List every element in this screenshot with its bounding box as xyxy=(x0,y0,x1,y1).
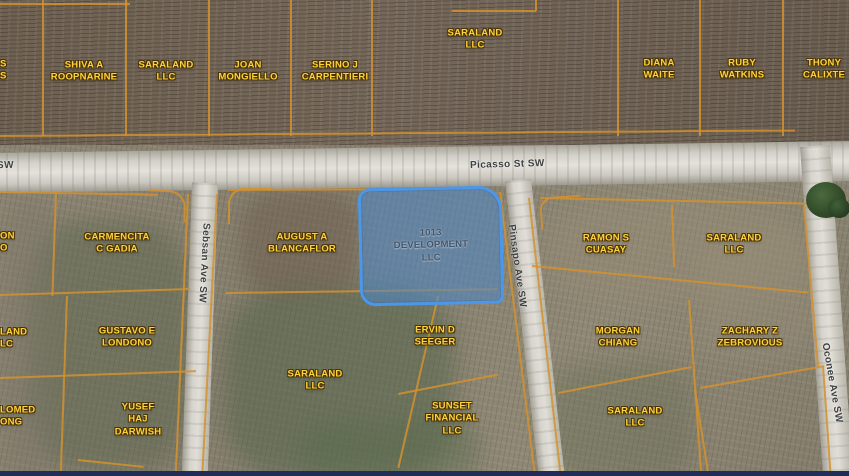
parcel-boundary-line xyxy=(532,265,809,294)
parcel-label-partial-left-1[interactable]: ON O xyxy=(0,231,15,256)
parcel-boundary-line xyxy=(208,0,210,136)
parcel-label-joan-mongiello[interactable]: JOAN MONGIELLO xyxy=(218,60,277,85)
parcel-boundary-line xyxy=(60,296,68,476)
parcel-label-yusef-haj-darwish[interactable]: YUSEF HAJ DARWISH xyxy=(115,401,162,438)
parcel-label-sunset-financial-llc[interactable]: SUNSET FINANCIAL LLC xyxy=(426,400,479,437)
parcel-boundary-line xyxy=(535,0,537,11)
road-picasso-st-sw xyxy=(0,141,849,193)
parcel-label-august-a-blancaflor[interactable]: AUGUST A BLANCAFLOR xyxy=(268,232,336,257)
parcel-corner xyxy=(228,188,272,224)
parcel-boundary-line xyxy=(0,191,158,196)
parcel-boundary-line xyxy=(397,296,439,468)
parcel-boundary-line xyxy=(78,459,144,468)
parcel-boundary-line xyxy=(782,0,784,136)
map-canvas[interactable]: 1013 DEVELOPMENT LLC S S SHIVA A ROOPNAR… xyxy=(0,0,849,476)
parcel-boundary-line xyxy=(0,288,190,296)
parcel-label-shiva-a-roopnarine[interactable]: SHIVA A ROOPNARINE xyxy=(51,60,117,85)
parcel-label-saraland-llc-3[interactable]: SARALAND LLC xyxy=(288,369,343,394)
parcel-boundary-line xyxy=(558,366,692,394)
parcel-boundary-line xyxy=(452,10,536,12)
parcel-label-morgan-chiang[interactable]: MORGAN CHIANG xyxy=(596,326,640,351)
parcel-label-carmencita-c-gadia[interactable]: CARMENCITA C GADIA xyxy=(84,232,149,257)
parcel-label-zachary-z-zebrovious[interactable]: ZACHARY Z ZEBROVIOUS xyxy=(718,326,783,351)
parcel-label-saraland-llc-2[interactable]: SARALAND LLC xyxy=(448,28,503,53)
road-oconee-ave-sw xyxy=(800,145,849,476)
parcel-boundary-line xyxy=(699,0,701,136)
parcel-boundary-line xyxy=(125,0,127,136)
street-label-partial-sw: SW xyxy=(0,160,14,171)
street-label-picasso-st-sw: Picasso St SW xyxy=(470,158,545,171)
parcel-boundary-line xyxy=(42,0,44,136)
parcel-label-serino-j-carpentieri[interactable]: SERINO J CARPENTIERI xyxy=(302,60,369,85)
parcel-label-thony-calixte[interactable]: THONY CALIXTE xyxy=(803,58,845,83)
parcel-label-diana-waite[interactable]: DIANA WAITE xyxy=(643,58,674,83)
parcel-label-saraland-llc-1[interactable]: SARALAND LLC xyxy=(139,60,194,85)
parcel-label-gustavo-e-londono[interactable]: GUSTAVO E LONDONO xyxy=(99,326,155,351)
parcel-label-saraland-llc-4[interactable]: SARALAND LLC xyxy=(707,233,762,258)
parcel-label-partial-left-2[interactable]: LAND LC xyxy=(0,327,27,352)
selected-parcel[interactable]: 1013 DEVELOPMENT LLC xyxy=(358,186,504,307)
parcel-label-saraland-llc-5[interactable]: SARALAND LLC xyxy=(608,406,663,431)
parcel-boundary-line xyxy=(290,0,292,136)
parcel-label-partial-left-3[interactable]: LOMED ONG xyxy=(0,405,35,430)
parcel-boundary-line xyxy=(51,192,57,296)
parcel-label-ervin-d-seeger[interactable]: ERVIN D SEEGER xyxy=(415,325,456,350)
parcel-boundary-line xyxy=(0,370,196,379)
parcel-boundary-line xyxy=(671,205,675,267)
parcel-boundary-line xyxy=(700,365,824,389)
parcel-corner xyxy=(539,195,583,230)
selected-parcel-label[interactable]: 1013 DEVELOPMENT LLC xyxy=(393,227,468,266)
parcel-boundary-line xyxy=(617,0,619,136)
bottom-edge-bar xyxy=(0,471,849,476)
parcel-label-ruby-watkins[interactable]: RUBY WATKINS xyxy=(720,58,765,83)
parcel-label-partial-top-left[interactable]: S S xyxy=(0,59,7,84)
parcel-boundary-line xyxy=(398,374,499,395)
parcel-boundary-line xyxy=(0,3,130,5)
parcel-corner xyxy=(147,189,186,222)
parcel-label-ramon-s-cuasay[interactable]: RAMON S CUASAY xyxy=(583,233,629,258)
parcel-boundary-line xyxy=(371,0,373,136)
